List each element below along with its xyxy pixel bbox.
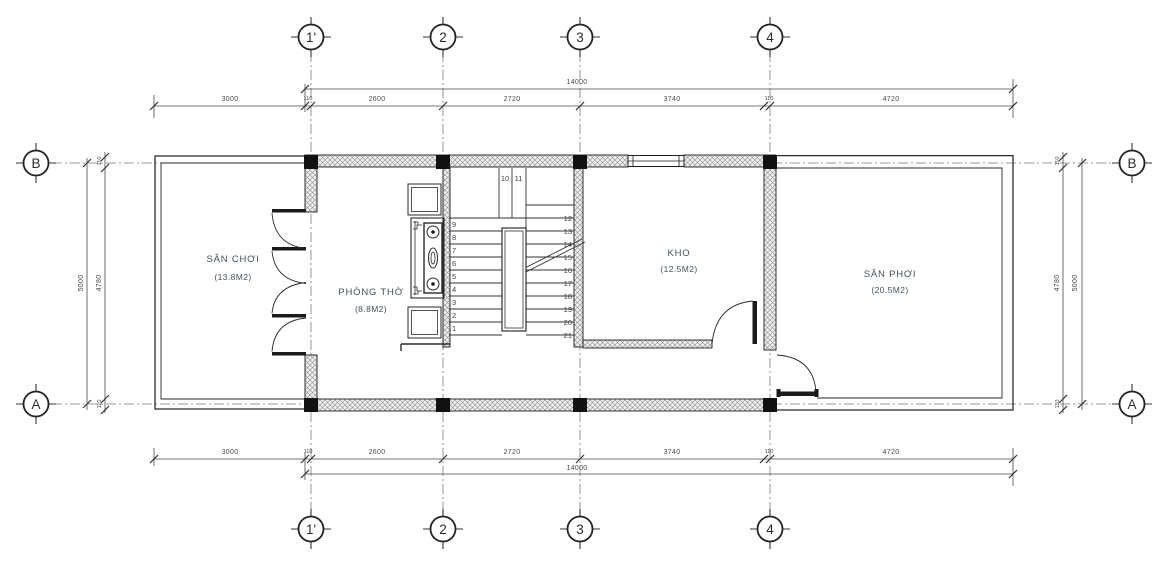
axis-bubble-label: 2 <box>439 30 447 45</box>
dim-right-5000: 5000 <box>1072 275 1079 292</box>
door-arc <box>777 355 816 391</box>
axis-bubble-top-3: 3 <box>560 17 600 57</box>
axis-bubble-label: B <box>31 156 40 171</box>
door-leaf <box>779 392 817 397</box>
step-number: 4 <box>452 285 456 294</box>
step-number: 11 <box>515 174 523 183</box>
dim-right-110b: 110 <box>1055 400 1061 409</box>
dim-top-110a: 110 <box>304 96 313 102</box>
door-arc <box>272 251 306 284</box>
dim-right-110t: 110 <box>1055 157 1061 166</box>
door-jamb <box>777 389 781 397</box>
axis-bubble-right-A: A <box>1112 384 1152 424</box>
san-phoi-door <box>777 355 819 397</box>
room-name-san-phoi: SÂN PHƠI <box>864 269 917 280</box>
altar-corner-ornament <box>413 222 422 229</box>
door-leaf <box>272 314 306 318</box>
step-number: 15 <box>564 253 572 262</box>
step-number: 5 <box>452 272 456 281</box>
wall-bottom <box>305 399 776 411</box>
altar-incense <box>429 248 438 268</box>
altar-candle-dot <box>431 230 435 234</box>
axis-bubble-left-B: B <box>16 143 56 183</box>
altar-candle-dot <box>431 282 435 286</box>
step-number: 8 <box>452 233 456 242</box>
column <box>304 155 318 169</box>
dim-left-4780: 4780 <box>96 275 103 292</box>
step-number: 7 <box>452 246 456 255</box>
step-number: 10 <box>501 174 509 183</box>
axis-bubble-label: 3 <box>576 30 584 45</box>
drawing-sheet: 14000 3000 110 2600 2720 3740 110 4720 1… <box>0 0 1174 566</box>
structural-columns <box>304 155 777 412</box>
room-labels: SÂN CHƠI (13.8M2) PHÒNG THỜ (8.8M2) KHO … <box>206 248 916 314</box>
axis-bubble-left-A: A <box>16 384 56 424</box>
column <box>763 155 777 169</box>
door-layer <box>272 209 819 397</box>
floor-plan-svg: 14000 3000 110 2600 2720 3740 110 4720 1… <box>0 0 1174 566</box>
axis-bubble-label: A <box>1127 397 1136 412</box>
step-number: 2 <box>452 311 456 320</box>
window-symbol <box>628 156 684 167</box>
column <box>573 398 587 412</box>
axis-bubble-label: B <box>1127 156 1136 171</box>
step-number: 1 <box>452 324 456 333</box>
dim-bot-110a: 110 <box>304 449 313 455</box>
dim-bot-3000: 3000 <box>222 449 239 456</box>
door-arc <box>272 213 306 249</box>
column <box>763 398 777 412</box>
room-name-san-choi: SÂN CHƠI <box>206 254 259 265</box>
wall-kho-bottom <box>583 340 712 348</box>
dim-top-110b: 110 <box>765 96 774 102</box>
kho-door <box>712 301 757 344</box>
axis-bubble-label: 1' <box>306 30 316 45</box>
axis-bubble-top-1p: 1' <box>291 17 331 57</box>
column <box>304 398 318 412</box>
room-area-san-phoi: (20.5M2) <box>871 285 908 295</box>
dim-left-5000: 5000 <box>78 275 85 292</box>
dim-top-2720: 2720 <box>504 96 521 103</box>
planter-top <box>408 184 441 215</box>
dim-right-4780: 4780 <box>1054 275 1061 292</box>
step-number: 6 <box>452 259 456 268</box>
axis-bubble-top-4: 4 <box>750 17 790 57</box>
room-area-phong-tho: (8.8M2) <box>355 304 387 314</box>
dim-top-3000: 3000 <box>222 96 239 103</box>
axis-bubble-label: 1' <box>306 522 316 537</box>
door-arc <box>272 318 306 352</box>
room-area-san-choi: (13.8M2) <box>214 272 251 282</box>
san-phoi-inner-boundary <box>776 168 1002 398</box>
step-number: 20 <box>564 318 572 327</box>
axis-bubble-label: 2 <box>439 522 447 537</box>
step-number: 9 <box>452 220 456 229</box>
step-number: 14 <box>564 240 572 249</box>
column <box>436 398 450 412</box>
step-number: 16 <box>564 266 572 275</box>
dim-top-total: 14000 <box>567 79 588 86</box>
wall-axis4 <box>764 167 776 350</box>
door-leaf <box>272 352 306 356</box>
room-name-phong-tho: PHÒNG THỜ <box>338 287 403 298</box>
wall-layer <box>304 155 777 412</box>
dim-bot-110b: 110 <box>765 449 774 455</box>
dim-left-110b: 110 <box>97 400 103 409</box>
altar-table <box>411 218 444 298</box>
step-number: 13 <box>564 227 572 236</box>
door-jamb <box>815 389 819 397</box>
column <box>436 155 450 169</box>
san-phoi-outer-boundary <box>776 156 1013 410</box>
axis-bubble-label: 3 <box>576 522 584 537</box>
room-area-kho: (12.5M2) <box>660 264 697 274</box>
step-number: 17 <box>564 279 572 288</box>
axis-bubble-top-2: 2 <box>423 17 463 57</box>
terrace-layer <box>155 156 1013 410</box>
stair-layer: 9 8 7 6 5 4 3 2 1 12 13 14 15 16 17 18 1… <box>449 168 585 340</box>
step-number: 19 <box>564 305 572 314</box>
axis-bubble-right-B: B <box>1112 143 1152 183</box>
axis-bubble-bottom-1p: 1' <box>291 509 331 549</box>
dim-top-2600: 2600 <box>369 96 386 103</box>
dim-bot-4720: 4720 <box>883 449 900 456</box>
wall-axis1-upper <box>305 167 317 212</box>
axis-bubble-label: 4 <box>766 30 774 45</box>
door-leaf <box>753 301 758 344</box>
wall-axis1-lower <box>305 355 317 399</box>
wall-axis3 <box>574 167 583 347</box>
axis-bubble-bottom-3: 3 <box>560 509 600 549</box>
step-number: 3 <box>452 298 456 307</box>
planter-bottom <box>408 307 441 338</box>
step-number: 18 <box>564 292 572 301</box>
altar-incense-inner <box>431 252 435 264</box>
column <box>573 155 587 169</box>
folding-door <box>272 209 306 356</box>
step-number: 12 <box>564 214 572 223</box>
door-leaf <box>272 209 306 213</box>
dim-bot-3740: 3740 <box>664 449 681 456</box>
axis-bubble-label: 4 <box>766 522 774 537</box>
grid-axes <box>52 52 1117 514</box>
dim-top-3740: 3740 <box>664 96 681 103</box>
san-choi-outer-boundary <box>155 156 305 409</box>
axis-bubble-label: A <box>31 397 40 412</box>
dim-bot-total: 14000 <box>567 465 588 472</box>
wall-top-right <box>684 155 776 167</box>
door-arc <box>272 283 306 314</box>
room-name-kho: KHO <box>668 248 691 259</box>
stair-core-outer <box>502 228 526 331</box>
dim-top-4720: 4720 <box>883 96 900 103</box>
dim-bot-2600: 2600 <box>369 449 386 456</box>
altar-corner-ornament <box>413 287 422 294</box>
axis-bubble-bottom-4: 4 <box>750 509 790 549</box>
axis-bubble-bottom-2: 2 <box>423 509 463 549</box>
door-arc <box>712 301 753 344</box>
dim-left-110t: 110 <box>97 157 103 166</box>
step-number: 21 <box>564 331 572 340</box>
dim-bot-2720: 2720 <box>504 449 521 456</box>
